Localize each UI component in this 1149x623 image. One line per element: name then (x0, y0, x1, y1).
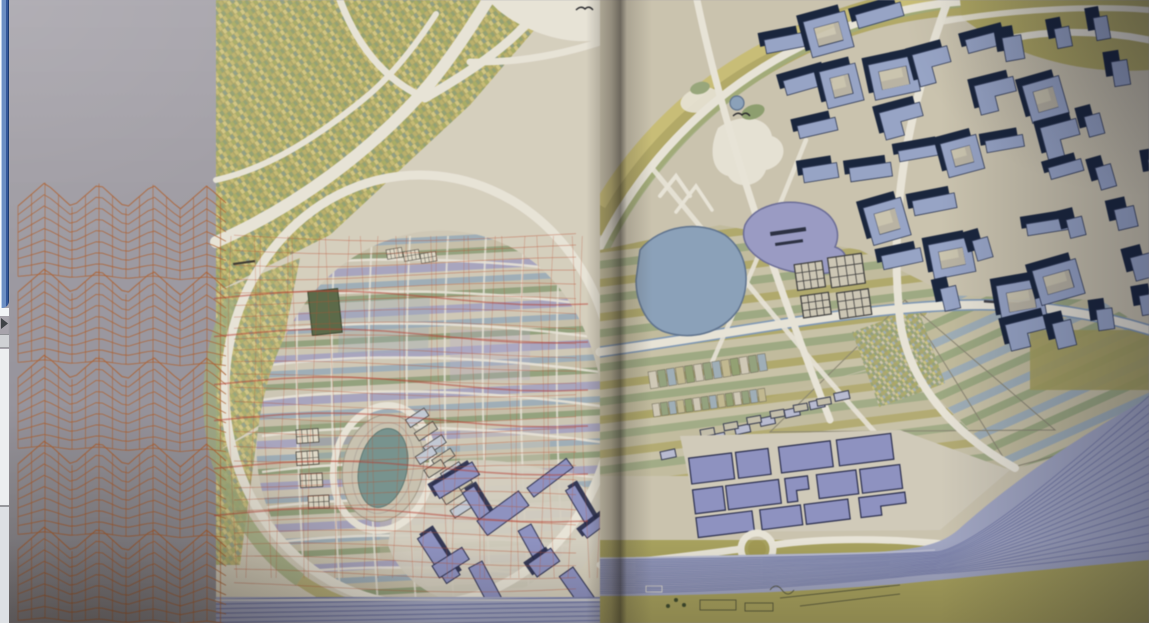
olive-right-mid (1030, 330, 1149, 390)
window-content-fragment (0, 349, 9, 505)
left-page (9, 0, 618, 623)
window-blue-border[interactable] (0, 0, 9, 308)
window-lower-fragment (0, 507, 9, 623)
blue-lake (636, 227, 746, 336)
masterplan-drawing (0, 0, 1149, 623)
background-window-edge[interactable] (0, 0, 9, 623)
right-page (576, 0, 1149, 623)
pond (730, 96, 744, 110)
resize-grip-icon (1, 318, 8, 329)
window-body-fragment (0, 308, 9, 316)
book-photo (0, 0, 1149, 623)
window-toolbar-fragment (0, 334, 9, 348)
photo-content (0, 0, 1149, 623)
